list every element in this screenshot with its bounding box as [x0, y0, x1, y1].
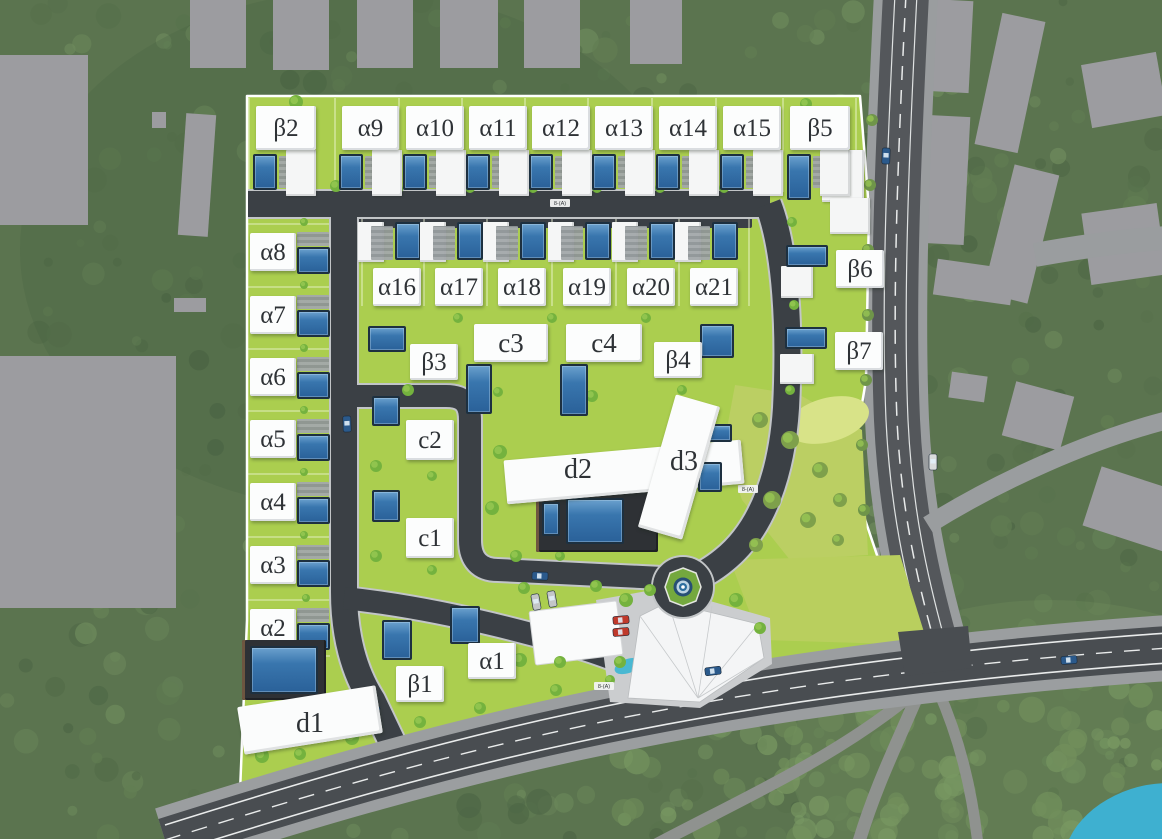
unit-marker-β3[interactable]: β3 [410, 344, 458, 380]
forest-tree [64, 44, 75, 55]
landscape-tree-highlight [750, 539, 758, 547]
landscape-tree-highlight [645, 585, 652, 592]
forest-tree [1093, 287, 1104, 298]
landscape-tree-highlight [529, 184, 535, 190]
forest-tree [1012, 358, 1030, 376]
unit-marker-α15[interactable]: α15 [723, 106, 781, 150]
unit-marker-α7[interactable]: α7 [250, 296, 296, 334]
landscape-tree-highlight [415, 717, 422, 724]
forest-tree [103, 652, 126, 675]
landscape-tree-highlight [488, 246, 494, 252]
surrounding-building [440, 0, 498, 68]
unit-marker-c1[interactable]: c1 [406, 518, 454, 558]
forest-tree [158, 718, 181, 741]
forest-tree [63, 723, 73, 733]
landscape-tree-highlight [606, 676, 612, 682]
landscape-tree-highlight [859, 505, 866, 512]
forest-tree [14, 729, 39, 754]
landscape-tree-highlight [371, 551, 378, 558]
forest-tree [842, 0, 865, 23]
landscape-tree-highlight [680, 246, 686, 252]
forest-tree [648, 779, 662, 793]
unit-marker-α21[interactable]: α21 [690, 268, 738, 306]
landscape-tree-highlight [651, 513, 658, 520]
landscape-tree-highlight [475, 703, 482, 710]
unit-marker-α16[interactable]: α16 [373, 268, 421, 306]
landscape-tree-highlight [857, 440, 864, 447]
landscape-tree-highlight [802, 514, 811, 523]
landscape-tree-highlight [303, 595, 307, 599]
landscape-tree-highlight [617, 246, 623, 252]
surrounding-building [524, 0, 580, 68]
landscape-tree-highlight [801, 99, 808, 106]
forest-tree [1049, 121, 1059, 131]
forest-tree [612, 799, 637, 824]
landscape-tree-highlight [865, 180, 872, 187]
forest-tree [45, 677, 65, 697]
forest-tree [1029, 96, 1040, 107]
forest-tree [1066, 77, 1074, 85]
unit-marker-β7[interactable]: β7 [835, 332, 883, 370]
landscape-tree-highlight [394, 185, 400, 191]
unit-marker-d3[interactable]: d3 [646, 446, 722, 478]
forest-tree [949, 533, 959, 543]
forest-tree [213, 746, 225, 758]
car [613, 615, 630, 624]
landscape-tree-highlight [454, 314, 460, 320]
forest-tree [507, 795, 525, 813]
landscape-tree-highlight [494, 446, 502, 454]
forest-tree [1149, 581, 1159, 591]
road-tag-label: 8-(A) [598, 684, 610, 690]
forest-tree [736, 826, 747, 837]
forest-tree [1094, 320, 1105, 331]
unit-marker-c4[interactable]: c4 [566, 324, 642, 362]
forest-tree [640, 757, 661, 778]
forest-tree [592, 37, 617, 62]
car [705, 666, 722, 676]
unit-marker-β5[interactable]: β5 [790, 106, 850, 150]
unit-marker-β4[interactable]: β4 [654, 342, 702, 378]
unit-marker-d1[interactable]: d1 [272, 708, 348, 740]
forest-tree [656, 73, 666, 83]
landscape-tree-highlight [301, 219, 305, 223]
forest-tree [1128, 176, 1145, 193]
landscape-tree-highlight [587, 391, 594, 398]
forest-tree [1076, 541, 1085, 550]
landscape-tree-highlight [424, 246, 430, 252]
site-plan-canvas: 8-(A)8-(A)8-(A) β2α9α10α11α12α13α14α15β5… [0, 0, 1162, 839]
car [343, 416, 352, 432]
landscape-tree-highlight [290, 96, 298, 104]
forest-tree [106, 705, 125, 724]
forest-tree [67, 806, 77, 816]
landscape-tree-highlight [556, 552, 562, 558]
landscape-tree-highlight [620, 594, 628, 602]
landscape-tree-highlight [371, 461, 378, 468]
landscape-tree-highlight [551, 685, 558, 692]
surrounding-building [190, 0, 246, 68]
landscape-tree-highlight [301, 407, 305, 411]
unit-marker-α14[interactable]: α14 [659, 106, 717, 150]
unit-marker-α13[interactable]: α13 [595, 106, 653, 150]
forest-tree [941, 456, 957, 472]
forest-tree [1072, 110, 1086, 124]
surrounding-building [0, 55, 88, 225]
surrounding-building [273, 0, 329, 70]
surrounding-building [1081, 52, 1162, 128]
car [613, 627, 630, 636]
landscape-tree-highlight [786, 386, 792, 392]
landscape-tree-highlight [765, 493, 775, 503]
landscape-tree-highlight [428, 566, 434, 572]
forest-tree [772, 12, 789, 29]
surrounding-building [357, 0, 413, 68]
landscape-tree-highlight [814, 464, 823, 473]
forest-tree [768, 790, 784, 806]
forest-tree [797, 25, 814, 42]
forest-tree [1025, 547, 1038, 560]
forest-tree [713, 769, 729, 785]
forest-tree [1039, 486, 1056, 503]
unit-marker-β1[interactable]: β1 [396, 666, 444, 702]
forest-tree [681, 779, 704, 802]
forest-tree [180, 589, 199, 608]
forest-tree [745, 46, 757, 58]
unit-marker-α3[interactable]: α3 [250, 546, 296, 584]
forest-tree [91, 753, 102, 764]
car [882, 148, 891, 164]
forest-tree [19, 659, 33, 673]
car [929, 454, 937, 470]
unit-marker-d2[interactable]: d2 [540, 454, 616, 486]
landscape-tree-highlight [301, 469, 305, 473]
forest-tree [682, 799, 693, 810]
surrounding-building [174, 298, 206, 312]
landscape-tree-highlight [403, 385, 410, 392]
forest-tree [1045, 331, 1063, 349]
forest-tree [1041, 267, 1059, 285]
forest-tree [779, 758, 790, 769]
landscape-tree-highlight [755, 623, 762, 630]
forest-tree [687, 768, 697, 778]
landscape-tree-highlight [295, 749, 302, 756]
forest-tree [991, 515, 1012, 536]
forest-tree [1108, 369, 1122, 383]
landscape-tree-highlight [466, 184, 472, 190]
unit-marker-c3[interactable]: c3 [474, 324, 548, 362]
forest-tree [124, 786, 137, 799]
landscape-tree-highlight [642, 314, 648, 320]
landscape-tree-highlight [256, 750, 264, 758]
landscape-tree-highlight [555, 657, 562, 664]
unit-marker-α5[interactable]: α5 [250, 420, 296, 458]
surrounding-building [948, 372, 987, 403]
unit-marker-α20[interactable]: α20 [627, 268, 675, 306]
landscape-tree-highlight [656, 184, 662, 190]
forest-tree [554, 793, 574, 813]
car [1061, 655, 1078, 664]
forest-tree [75, 622, 97, 644]
unit-marker-c2[interactable]: c2 [406, 420, 454, 460]
surrounding-building [630, 0, 682, 64]
forest-tree [96, 3, 121, 28]
landscape-tree-highlight [494, 388, 500, 394]
landscape-tree-highlight [301, 345, 305, 349]
unit-marker-β2[interactable]: β2 [256, 106, 316, 150]
forest-tree [456, 793, 481, 818]
unit-marker-α18[interactable]: α18 [498, 268, 546, 306]
landscape-tree-highlight [720, 184, 726, 190]
forest-tree [526, 789, 552, 815]
roundabout [652, 556, 714, 618]
landscape-tree-highlight [593, 184, 599, 190]
forest-tree [698, 745, 713, 760]
forest-tree [1057, 527, 1076, 546]
surrounding-building [152, 112, 166, 128]
unit-marker-α19[interactable]: α19 [563, 268, 611, 306]
forest-tree [30, 3, 52, 25]
landscape-tree-highlight [834, 494, 842, 502]
landscape-tree-highlight [730, 594, 738, 602]
road-intersection [898, 626, 972, 676]
forest-tree [145, 617, 169, 641]
landscape-tree-highlight [867, 115, 874, 122]
forest-tree [79, 728, 96, 745]
landscape-tree-highlight [863, 310, 870, 317]
forest-tree [156, 681, 180, 705]
forest-tree [1050, 148, 1066, 164]
forest-tree [1120, 549, 1137, 566]
road-tag-label: 8-(A) [742, 487, 754, 493]
road-tag-label: 8-(A) [554, 201, 566, 207]
landscape-tree-highlight [548, 314, 554, 320]
landscape-tree-highlight [591, 581, 598, 588]
forest-tree [814, 9, 836, 31]
unit-marker-α9[interactable]: α9 [342, 106, 399, 150]
landscape-tree-highlight [790, 301, 796, 307]
car [532, 572, 548, 581]
forest-tree [346, 824, 360, 838]
landscape-tree-highlight [678, 386, 684, 392]
landscape-tree-highlight [841, 161, 848, 168]
forest-tree [994, 153, 1009, 168]
forest-tree [89, 686, 108, 705]
forest-tree [966, 157, 985, 176]
forest-tree [132, 772, 141, 781]
unit-marker-α1[interactable]: α1 [468, 643, 516, 679]
unit-marker-α4[interactable]: α4 [250, 483, 296, 521]
landscape-tree-highlight [511, 551, 518, 558]
unit-marker-α12[interactable]: α12 [532, 106, 590, 150]
surrounding-building [0, 356, 176, 608]
forest-tree [660, 807, 676, 823]
forest-tree [65, 764, 80, 779]
landscape-tree-highlight [833, 535, 840, 542]
forest-tree [972, 178, 997, 203]
unit-marker-α6[interactable]: α6 [250, 358, 296, 396]
landscape-tree-highlight [754, 414, 763, 423]
forest-tree [1144, 377, 1162, 396]
clubhouse-building [529, 601, 623, 665]
unit-marker-α2[interactable]: α2 [250, 609, 296, 647]
landscape-tree-highlight [861, 375, 868, 382]
unit-marker-α8[interactable]: α8 [250, 233, 296, 271]
forest-tree [1025, 317, 1041, 333]
landscape-tree-highlight [428, 472, 434, 478]
unit-marker-β6[interactable]: β6 [836, 250, 884, 288]
landscape-tree-highlight [615, 657, 622, 664]
landscape-tree-highlight [331, 181, 338, 188]
roundabout-fountain [681, 585, 685, 589]
unit-marker-α10[interactable]: α10 [406, 106, 464, 150]
landscape-tree-highlight [486, 502, 494, 510]
landscape-tree-highlight [788, 218, 794, 224]
forest-tree [1020, 512, 1044, 536]
landscape-tree-highlight [519, 583, 526, 590]
forest-tree [987, 454, 1005, 472]
forest-tree [1101, 415, 1115, 429]
landscape-tree-highlight [301, 282, 305, 286]
forest-tree [794, 815, 804, 825]
landscape-tree-highlight [553, 246, 559, 252]
forest-tree [1141, 310, 1154, 323]
forest-tree [0, 693, 14, 708]
forest-tree [1035, 158, 1046, 169]
unit-marker-α17[interactable]: α17 [435, 268, 483, 306]
landscape-tree-highlight [361, 247, 368, 254]
forest-tree [577, 786, 595, 804]
unit-marker-α11[interactable]: α11 [469, 106, 527, 150]
landscape-tree-highlight [301, 532, 305, 536]
landscape-tree-highlight [783, 433, 793, 443]
